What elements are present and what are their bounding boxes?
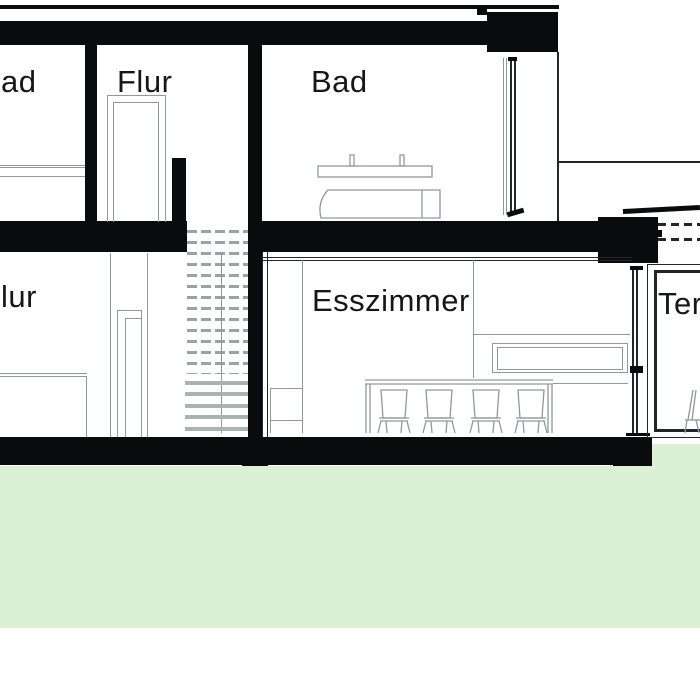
door-frame-inner-top [113, 102, 159, 103]
roof-slab-line [0, 5, 559, 9]
dining-table-and-chairs [360, 374, 560, 434]
stair-tread-5 [185, 427, 248, 431]
terrace-frame-outer-left [647, 264, 648, 438]
lower-door-leaf-left [125, 318, 126, 437]
upper-window-glazing-2 [514, 58, 516, 215]
dining-glazing-handle [630, 366, 643, 373]
stair-tread-4 [185, 415, 248, 419]
lower-door-leaf-top [125, 318, 142, 319]
door-frame-inner-right [158, 102, 159, 222]
stair-tread-2 [185, 392, 248, 396]
lower-door-inner-top [117, 310, 142, 311]
canopy-hidden-edge-upper [658, 223, 700, 226]
dining-glazing-2 [636, 268, 638, 435]
lower-counter-line-2 [0, 376, 87, 377]
lower-door-jamb-right [147, 253, 148, 437]
terrace-frame-outer-bottom [647, 437, 700, 438]
room-label-terrace: Ter [658, 288, 700, 319]
lower-door-inner-right [141, 310, 142, 437]
vanity-counter-line-2 [0, 167, 85, 168]
right-facade-line [557, 52, 559, 221]
dining-cabinet-top [270, 388, 302, 389]
lower-counter-line-1 [0, 373, 87, 374]
room-label-upper-left: ad [1, 66, 36, 97]
dining-window-inner [497, 347, 623, 370]
terrace-frame-inner-top [654, 270, 700, 273]
dining-wall-joint [473, 260, 474, 378]
stair-tread-1 [185, 381, 248, 385]
vanity-counter-line-3 [0, 176, 85, 177]
dining-ceiling-line-2 [262, 260, 632, 261]
upper-window-frame-2 [506, 58, 507, 215]
dining-ceiling-line-1 [262, 257, 632, 258]
door-frame-inner-left [113, 102, 114, 222]
terrace-frame-inner-left [654, 270, 657, 432]
dining-band-line [473, 334, 630, 335]
bathroom-fixtures [314, 152, 446, 220]
ground-fill [0, 466, 700, 628]
lower-door-inner-left [117, 310, 118, 437]
lower-door-jamb-left [110, 253, 111, 437]
floor-slab-left [0, 221, 187, 252]
room-label-flur: Flur [117, 66, 172, 97]
annex-roof-line [558, 161, 700, 163]
ground-slab [0, 437, 652, 465]
dining-cabinet-shelf [270, 420, 302, 421]
room-label-bad: Bad [311, 66, 368, 97]
section-drawing: ad Flur Bad lur Esszimmer Ter [0, 0, 700, 700]
dining-wall-face-2 [267, 252, 268, 437]
floor-slab-right [248, 221, 658, 252]
terrace-frame-outer-top [647, 264, 700, 265]
lower-counter-side [86, 376, 87, 437]
door-frame-outer-right [165, 95, 166, 222]
ceiling-slab [0, 21, 500, 45]
dining-cabinet-side [270, 388, 271, 433]
vanity-counter-line-1 [0, 165, 85, 166]
dining-glazing-head [630, 266, 643, 270]
upper-window-frame-1 [503, 58, 504, 215]
canopy-hidden-edge-lower [658, 238, 700, 241]
room-label-lower-hall: lur [1, 281, 37, 312]
upper-window-glazing-1 [510, 58, 512, 215]
ground-fill-terrace [652, 444, 700, 466]
upper-window-head [508, 57, 517, 61]
dining-sill-line [553, 383, 628, 384]
canopy-anchor [654, 230, 662, 237]
dining-cupboard-edge [302, 260, 303, 433]
dining-glazing-1 [632, 268, 634, 435]
terrace-chair [683, 386, 700, 434]
stair-tread-3 [185, 404, 248, 408]
terrace-canopy-slab [623, 205, 700, 214]
door-frame-outer-left [107, 95, 108, 222]
dining-wall-face-1 [262, 252, 263, 437]
stair-railing-hatch [187, 222, 248, 374]
roof-curb [477, 9, 487, 15]
room-label-esszimmer: Esszimmer [312, 285, 470, 316]
wall-upper-left [85, 45, 97, 225]
